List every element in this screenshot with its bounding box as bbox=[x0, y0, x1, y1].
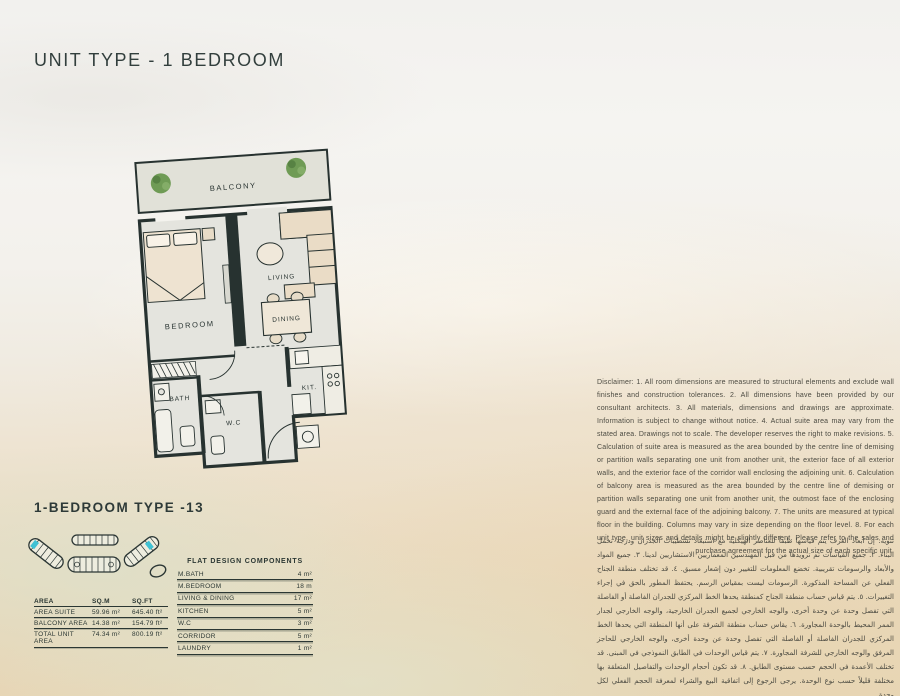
floor-plan: BALCONY BEDROOM bbox=[125, 145, 359, 479]
keyplan-oval-building bbox=[149, 563, 168, 579]
row-label: M.BATH bbox=[178, 571, 204, 578]
table-row: KITCHEN 5 m² bbox=[177, 606, 313, 617]
row-value: 1 m² bbox=[298, 645, 312, 652]
keyplan-building-right bbox=[122, 534, 162, 569]
area-table: AREA SQ.M SQ.FT AREA SUITE 59.96 m² 645.… bbox=[34, 596, 168, 648]
row-sqft: 800.19 ft² bbox=[132, 631, 168, 645]
table-row: LAUNDRY 1 m² bbox=[177, 643, 313, 654]
row-value: 3 m² bbox=[298, 620, 312, 627]
row-label: M.BEDROOM bbox=[178, 583, 222, 590]
keyplan-building-top bbox=[72, 535, 118, 545]
table-row: AREA SUITE 59.96 m² 645.40 ft² bbox=[34, 607, 168, 618]
room-label-kitchen: KIT. bbox=[302, 384, 318, 392]
components-table: FLAT DESIGN COMPONENTS M.BATH 4 m² M.BED… bbox=[177, 558, 313, 656]
table-row: BALCONY AREA 14.38 m² 154.79 ft² bbox=[34, 618, 168, 629]
row-sqm: 74.34 m² bbox=[92, 631, 132, 645]
bed bbox=[143, 229, 205, 303]
table-row: CORRIDOR 5 m² bbox=[177, 631, 313, 642]
row-label: TOTAL UNIT AREA bbox=[34, 631, 92, 645]
keyplan-building-left bbox=[26, 536, 66, 571]
row-label: W.C bbox=[178, 620, 191, 627]
table-row: M.BEDROOM 18 m bbox=[177, 581, 313, 592]
brochure-page: UNIT TYPE - 1 BEDROOM BALCONY bbox=[0, 0, 900, 696]
row-value: 4 m² bbox=[298, 571, 312, 578]
bedside-table bbox=[202, 228, 215, 241]
washing-machine bbox=[296, 425, 319, 448]
row-value: 5 m² bbox=[298, 608, 312, 615]
row-label: LIVING & DINING bbox=[178, 595, 235, 602]
site-key-plan bbox=[22, 530, 192, 590]
col-header-area: AREA bbox=[34, 598, 92, 605]
col-header-sqft: SQ.FT bbox=[132, 598, 168, 605]
row-sqft: 154.79 ft² bbox=[132, 620, 168, 627]
row-label: AREA SUITE bbox=[34, 609, 92, 616]
room-label-bath: BATH bbox=[169, 395, 190, 403]
table-row: M.BATH 4 m² bbox=[177, 569, 313, 580]
row-label: BALCONY AREA bbox=[34, 620, 92, 627]
disclaimer-english: Disclaimer: 1. All room dimensions are m… bbox=[597, 376, 894, 558]
row-value: 5 m² bbox=[298, 633, 312, 640]
area-table-header: AREA SQ.M SQ.FT bbox=[34, 596, 168, 607]
row-value: 17 m² bbox=[294, 595, 312, 602]
wardrobe bbox=[151, 361, 196, 378]
page-title: UNIT TYPE - 1 BEDROOM bbox=[34, 50, 285, 71]
row-label: KITCHEN bbox=[178, 608, 209, 615]
row-label: LAUNDRY bbox=[178, 645, 211, 652]
floor-plan-drawing: BALCONY BEDROOM bbox=[125, 145, 359, 479]
keyplan-building-middle bbox=[68, 557, 120, 572]
row-value: 18 m bbox=[296, 583, 312, 590]
row-label: CORRIDOR bbox=[178, 633, 216, 640]
table-row: TOTAL UNIT AREA 74.34 m² 800.19 ft² bbox=[34, 629, 168, 647]
room-label-wc: W.C bbox=[226, 419, 242, 427]
row-sqm: 14.38 m² bbox=[92, 620, 132, 627]
components-table-title: FLAT DESIGN COMPONENTS bbox=[177, 558, 313, 565]
table-row: W.C 3 m² bbox=[177, 619, 313, 630]
col-header-sqm: SQ.M bbox=[92, 598, 132, 605]
unit-type-title: 1-BEDROOM TYPE -13 bbox=[34, 500, 204, 515]
row-sqm: 59.96 m² bbox=[92, 609, 132, 616]
row-sqft: 645.40 ft² bbox=[132, 609, 168, 616]
table-row: LIVING & DINING 17 m² bbox=[177, 594, 313, 605]
key-plan-drawing bbox=[22, 530, 192, 590]
disclaimer-arabic: تنويه: إن أبعاد الغرف يتم قياسها طبقاً ل… bbox=[597, 534, 894, 696]
